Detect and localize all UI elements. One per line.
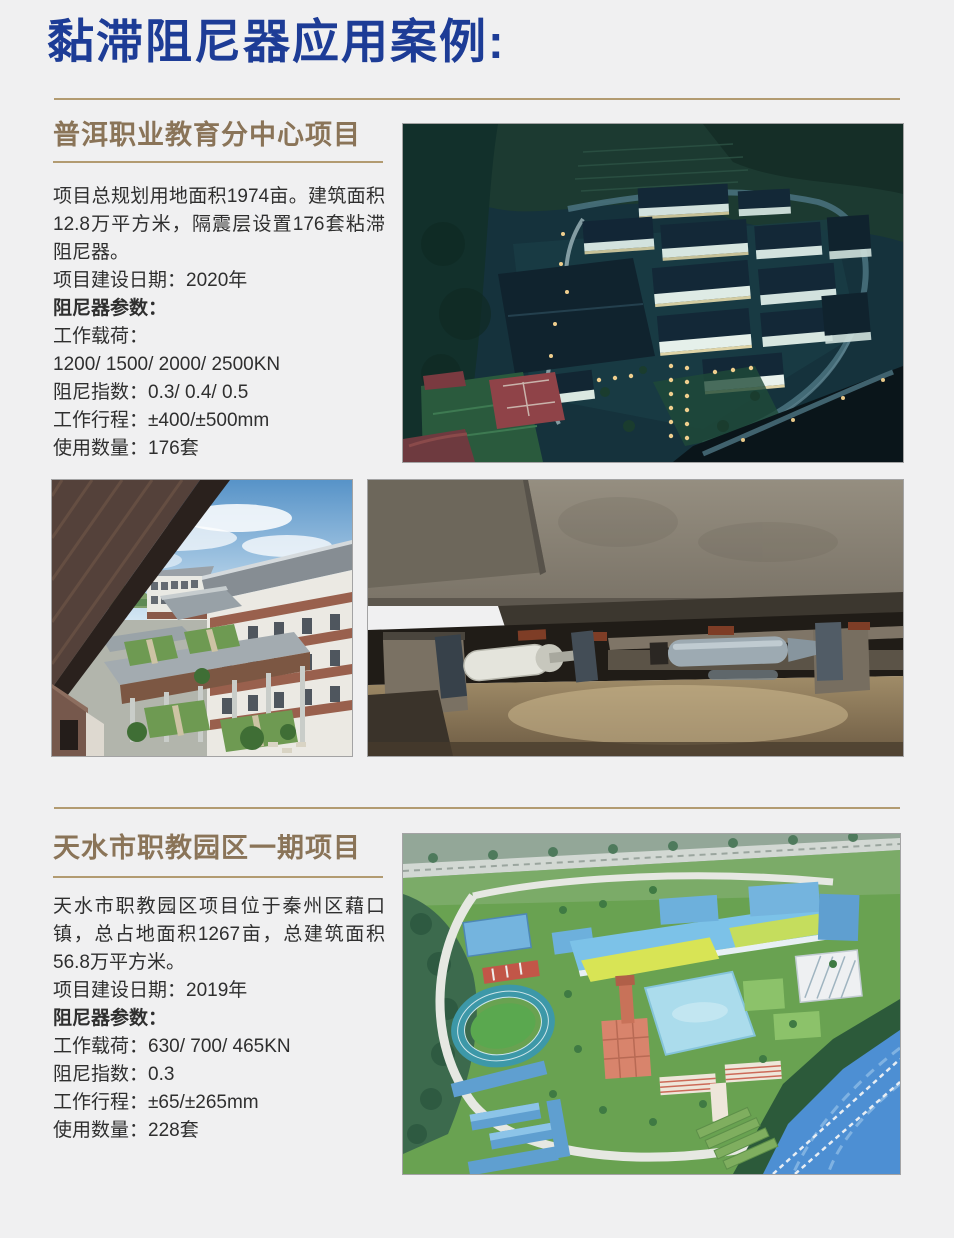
paragraph-line: 12.8万平方米，隔震层设置176套粘滞	[53, 211, 385, 239]
title-divider	[54, 98, 900, 100]
paragraph-line: 镇，总占地面积1267亩，总建筑面积	[53, 921, 385, 949]
section2-heading-underline	[53, 876, 383, 878]
param-line: 使用数量：176套	[53, 435, 385, 463]
section1-heading: 普洱职业教育分中心项目	[53, 119, 361, 151]
page-title: 黏滞阻尼器应用案例:	[47, 12, 506, 72]
param-line: 工作行程：±65/±265mm	[53, 1089, 385, 1117]
params-title: 阻尼器参数：	[53, 295, 385, 323]
param-line: 阻尼指数：0.3/ 0.4/ 0.5	[53, 379, 385, 407]
paragraph-line: 56.8万平方米。	[53, 949, 385, 977]
params-title: 阻尼器参数：	[53, 1005, 385, 1033]
photo-dampers-isolation-layer	[368, 480, 903, 756]
param-line: 工作行程：±400/±500mm	[53, 407, 385, 435]
photo-courtyard	[52, 480, 352, 756]
param-line: 工作载荷：	[53, 323, 385, 351]
section-divider	[54, 807, 900, 809]
param-line: 使用数量：228套	[53, 1117, 385, 1145]
photo-masterplan-rendering	[403, 834, 900, 1174]
paragraph-line: 阻尼器。	[53, 239, 385, 267]
paragraph-line: 项目总规划用地面积1974亩。建筑面积	[53, 183, 385, 211]
section2-details: 天水市职教园区项目位于秦州区藉口 镇，总占地面积1267亩，总建筑面积 56.8…	[53, 893, 385, 1145]
photo-night-aerial	[403, 124, 903, 462]
section1-details: 项目总规划用地面积1974亩。建筑面积 12.8万平方米，隔震层设置176套粘滞…	[53, 183, 385, 463]
param-line: 1200/ 1500/ 2000/ 2500KN	[53, 351, 385, 379]
section2-heading: 天水市职教园区一期项目	[53, 832, 361, 864]
build-date-line: 项目建设日期：2019年	[53, 977, 385, 1005]
build-date-line: 项目建设日期：2020年	[53, 267, 385, 295]
page: 黏滞阻尼器应用案例: 普洱职业教育分中心项目 项目总规划用地面积1974亩。建筑…	[0, 0, 954, 1238]
param-line: 工作载荷：630/ 700/ 465KN	[53, 1033, 385, 1061]
param-line: 阻尼指数：0.3	[53, 1061, 385, 1089]
section1-heading-underline	[53, 161, 383, 163]
paragraph-line: 天水市职教园区项目位于秦州区藉口	[53, 893, 385, 921]
